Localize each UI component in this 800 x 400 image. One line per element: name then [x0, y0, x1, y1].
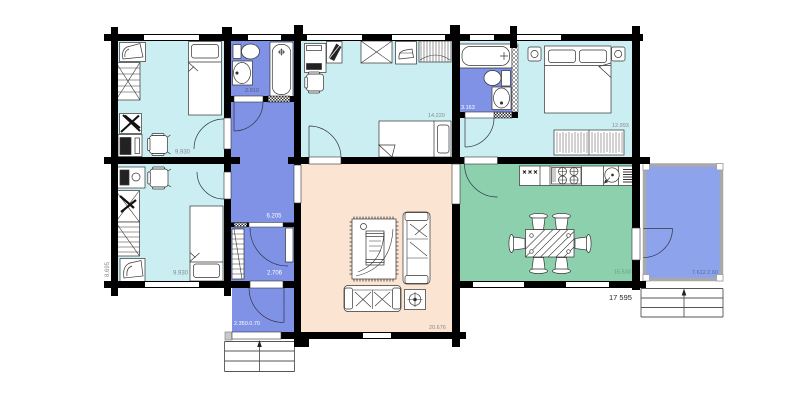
- svg-text:2.706: 2.706: [267, 271, 283, 277]
- svg-text:9.930: 9.930: [173, 271, 189, 277]
- svg-text:12.993: 12.993: [612, 123, 629, 129]
- svg-text:8.695: 8.695: [105, 261, 111, 277]
- svg-text:20.676: 20.676: [429, 325, 446, 331]
- svg-text:17 595: 17 595: [609, 293, 632, 302]
- svg-text:15.533: 15.533: [614, 270, 631, 276]
- svg-text:9.930: 9.930: [175, 150, 191, 156]
- svg-text:2.910: 2.910: [245, 88, 259, 94]
- svg-text:6.205: 6.205: [267, 214, 283, 220]
- svg-text:14.220: 14.220: [428, 113, 445, 119]
- svg-text:3.163: 3.163: [461, 105, 475, 111]
- svg-text:2.350.0.70: 2.350.0.70: [234, 321, 260, 327]
- svg-text:7.612 2.60: 7.612 2.60: [692, 270, 718, 276]
